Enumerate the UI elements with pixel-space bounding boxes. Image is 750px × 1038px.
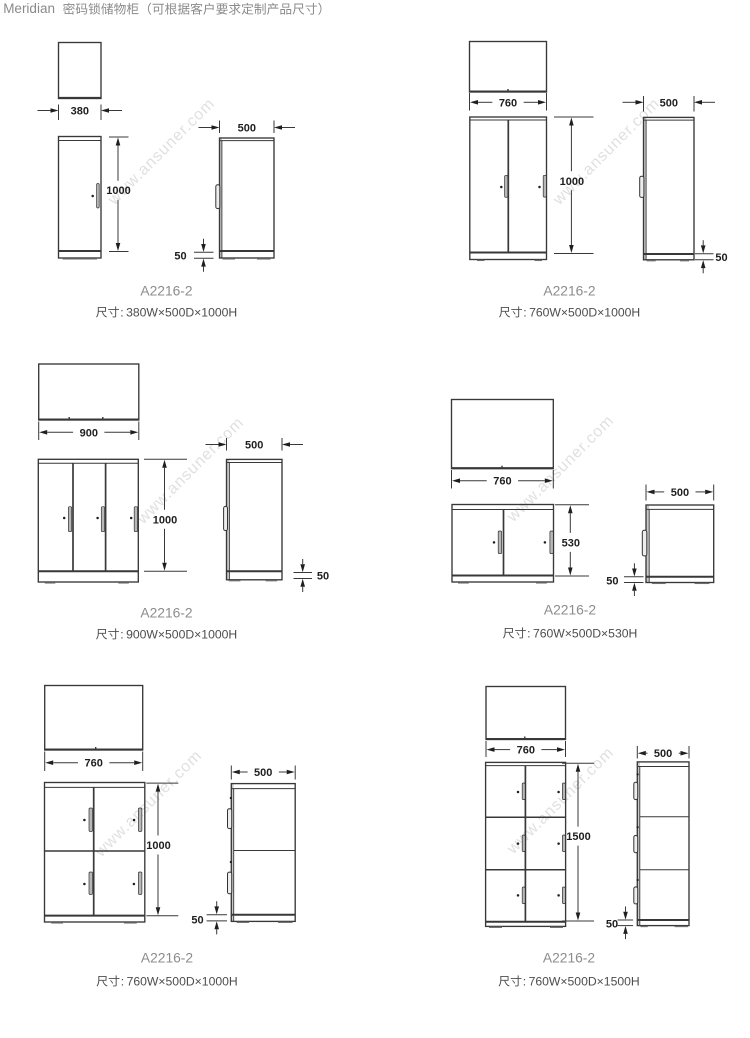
svg-text:760W×500D×530H: 760W×500D×530H [533, 627, 637, 641]
svg-text:Meridian: Meridian [3, 1, 55, 16]
svg-text:900: 900 [80, 427, 98, 439]
svg-text:500: 500 [654, 748, 672, 760]
svg-text::: : [527, 627, 530, 641]
svg-text:50: 50 [606, 919, 618, 931]
svg-text:A2216-2: A2216-2 [140, 606, 192, 621]
svg-text:380W×500D×1000H: 380W×500D×1000H [126, 306, 237, 320]
svg-text:50: 50 [606, 576, 618, 588]
svg-text:530: 530 [562, 537, 580, 549]
svg-text:A2216-2: A2216-2 [543, 284, 595, 299]
svg-text:760: 760 [499, 97, 517, 109]
svg-text:760: 760 [85, 758, 103, 770]
svg-text:500: 500 [238, 123, 256, 135]
svg-text:A2216-2: A2216-2 [141, 951, 193, 966]
svg-text::: : [121, 975, 124, 989]
svg-text:760: 760 [517, 745, 535, 757]
svg-text::: : [523, 306, 526, 320]
svg-text:760W×500D×1500H: 760W×500D×1500H [529, 975, 640, 989]
svg-text:760W×500D×1000H: 760W×500D×1000H [529, 306, 640, 320]
svg-text:760W×500D×1000H: 760W×500D×1000H [127, 975, 238, 989]
svg-text:1500: 1500 [566, 831, 590, 843]
svg-text:500: 500 [671, 487, 689, 499]
svg-text:500: 500 [254, 767, 272, 779]
svg-text:1000: 1000 [106, 185, 130, 197]
svg-text::: : [523, 975, 526, 989]
svg-text:500: 500 [245, 440, 263, 452]
svg-text:900W×500D×1000H: 900W×500D×1000H [126, 628, 237, 642]
svg-text::: : [120, 628, 123, 642]
svg-text:760: 760 [493, 476, 511, 488]
svg-text:50: 50 [715, 252, 727, 264]
svg-text:A2216-2: A2216-2 [543, 951, 595, 966]
svg-text:1000: 1000 [146, 840, 170, 852]
svg-text:380: 380 [71, 106, 89, 118]
svg-text:1000: 1000 [560, 176, 584, 188]
svg-text:1000: 1000 [153, 514, 177, 526]
svg-text:50: 50 [317, 571, 329, 583]
svg-text::: : [120, 306, 123, 320]
svg-text:A2216-2: A2216-2 [544, 603, 596, 618]
svg-text:A2216-2: A2216-2 [140, 284, 192, 299]
svg-text:50: 50 [174, 251, 186, 263]
svg-text:50: 50 [191, 915, 203, 927]
svg-text:500: 500 [660, 97, 678, 109]
